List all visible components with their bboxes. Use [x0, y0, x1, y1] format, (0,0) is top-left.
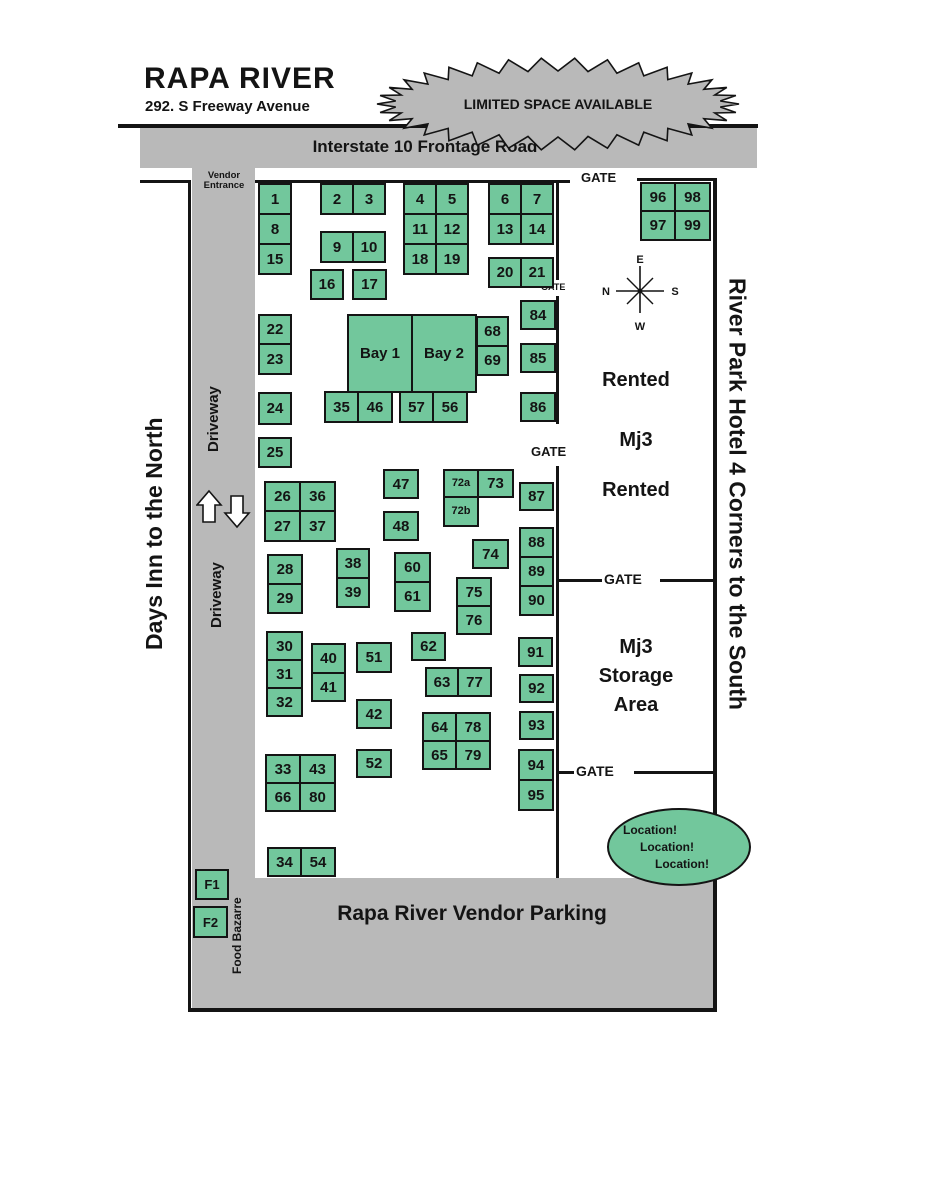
booth-37: 37: [299, 510, 336, 542]
booth-51: 51: [356, 642, 392, 673]
south-wall: [188, 1008, 717, 1012]
booth-75: 75: [456, 577, 492, 607]
booth-16: 16: [310, 269, 344, 300]
days-inn-label: Days Inn to the North: [142, 360, 167, 650]
booth-64: 64: [422, 712, 457, 742]
location-badge: Location! Location! Location!: [607, 808, 751, 886]
booth-32: 32: [266, 687, 303, 717]
south-gate-fence-left: [556, 771, 574, 774]
booth-95: 95: [518, 779, 554, 811]
booth-72a: 72a: [443, 469, 479, 498]
gate-label-storage: GATE: [604, 572, 642, 587]
booth-22: 22: [258, 314, 292, 345]
rented-top-label: Rented: [576, 369, 696, 391]
bay-bay-1: Bay 1: [347, 314, 413, 393]
booth-33: 33: [265, 754, 301, 784]
booth-80: 80: [299, 782, 336, 812]
vendor-map: RAPA RIVER 292. S Freeway Avenue Interst…: [0, 0, 927, 1200]
booth-89: 89: [519, 556, 554, 587]
booth-92: 92: [519, 674, 554, 703]
booth-31: 31: [266, 659, 303, 689]
booth-86: 86: [520, 392, 556, 422]
booth-8: 8: [258, 213, 292, 245]
booth-54: 54: [300, 847, 336, 877]
south-gate-fence-right: [634, 771, 713, 774]
north-wall-96: [637, 178, 716, 181]
booth-26: 26: [264, 481, 301, 512]
booth-28: 28: [267, 554, 303, 585]
booth-4: 4: [403, 183, 437, 215]
booth-14: 14: [520, 213, 554, 245]
booth-25: 25: [258, 437, 292, 468]
booth-f2: F2: [193, 906, 228, 938]
booth-65: 65: [422, 740, 457, 770]
limited-space-starburst: LIMITED SPACE AVAILABLE: [373, 56, 743, 154]
booth-61: 61: [394, 581, 431, 612]
booth-94: 94: [518, 749, 554, 781]
booth-73: 73: [477, 469, 514, 498]
booth-27: 27: [264, 510, 301, 542]
booth-47: 47: [383, 469, 419, 499]
booth-88: 88: [519, 527, 554, 558]
booth-1: 1: [258, 183, 292, 215]
down-arrow-icon: [225, 496, 249, 527]
booth-17: 17: [352, 269, 387, 300]
booth-60: 60: [394, 552, 431, 583]
booth-3: 3: [352, 183, 386, 215]
booth-9: 9: [320, 231, 354, 263]
compass-w: W: [635, 321, 646, 333]
booth-43: 43: [299, 754, 336, 784]
booth-91: 91: [518, 637, 553, 667]
booth-29: 29: [267, 583, 303, 614]
booth-48: 48: [383, 511, 419, 541]
storage-gate-fence-left: [556, 579, 602, 582]
food-bazarre-label: Food Bazarre: [231, 886, 244, 974]
booth-68: 68: [476, 316, 509, 347]
booth-13: 13: [488, 213, 522, 245]
booth-40: 40: [311, 643, 346, 674]
inner-wall-seg2: [556, 296, 559, 424]
booth-34: 34: [267, 847, 302, 877]
booth-f1: F1: [195, 869, 229, 900]
booth-90: 90: [519, 585, 554, 616]
booth-39: 39: [336, 577, 370, 608]
booth-79: 79: [455, 740, 491, 770]
booth-52: 52: [356, 749, 392, 778]
booth-56: 56: [432, 391, 468, 423]
compass-s: S: [671, 286, 678, 298]
booth-15: 15: [258, 243, 292, 275]
booth-38: 38: [336, 548, 370, 579]
booth-24: 24: [258, 392, 292, 425]
driveway-label-lower: Driveway: [209, 548, 226, 628]
booth-7: 7: [520, 183, 554, 215]
booth-97: 97: [640, 210, 676, 241]
booth-76: 76: [456, 605, 492, 635]
booth-23: 23: [258, 343, 292, 375]
booth-2: 2: [320, 183, 354, 215]
booth-99: 99: [674, 210, 711, 241]
site-title: RAPA RIVER: [144, 62, 336, 95]
booth-5: 5: [435, 183, 469, 215]
booth-10: 10: [352, 231, 386, 263]
booth-12: 12: [435, 213, 469, 245]
booth-62: 62: [411, 632, 446, 661]
booth-19: 19: [435, 243, 469, 275]
rented-bottom-label: Rented: [576, 479, 696, 501]
inner-wall-seg1: [556, 180, 559, 280]
vendor-entrance-label: Vendor Entrance: [197, 171, 251, 192]
inner-wall-seg3: [556, 466, 559, 878]
gate-label-south: GATE: [576, 764, 614, 779]
booth-93: 93: [519, 711, 554, 740]
booth-87: 87: [519, 482, 554, 511]
storage-gate-fence-right: [660, 579, 713, 582]
booth-20: 20: [488, 257, 522, 288]
booth-6: 6: [488, 183, 522, 215]
booth-85: 85: [520, 343, 556, 373]
booth-42: 42: [356, 699, 392, 729]
booth-35: 35: [324, 391, 359, 423]
booth-77: 77: [457, 667, 492, 697]
mj3-label: Mj3: [576, 429, 696, 451]
up-arrow-icon: [197, 491, 221, 522]
site-address: 292. S Freeway Avenue: [145, 99, 310, 116]
west-boundary-tick: [140, 180, 188, 183]
west-wall: [188, 180, 191, 1012]
limited-space-banner: LIMITED SPACE AVAILABLE: [464, 96, 652, 112]
booth-41: 41: [311, 672, 346, 702]
compass-n: N: [602, 286, 610, 298]
gate-label-top: GATE: [581, 171, 616, 185]
driveway-label-upper: Driveway: [206, 372, 223, 452]
booth-84: 84: [520, 300, 556, 330]
booth-69: 69: [476, 345, 509, 376]
booth-74: 74: [472, 539, 509, 569]
booth-30: 30: [266, 631, 303, 661]
booth-11: 11: [403, 213, 437, 245]
bay-bay-2: Bay 2: [411, 314, 477, 393]
parking-lot: [192, 878, 713, 1008]
booth-72b: 72b: [443, 496, 479, 527]
booth-21: 21: [520, 257, 554, 288]
booth-18: 18: [403, 243, 437, 275]
booth-46: 46: [357, 391, 393, 423]
booth-96: 96: [640, 182, 676, 212]
driveway-arrows-icon: [196, 488, 252, 530]
compass-icon: E N S W: [595, 252, 687, 338]
booth-66: 66: [265, 782, 301, 812]
booth-57: 57: [399, 391, 434, 423]
booth-78: 78: [455, 712, 491, 742]
river-park-hotel-label: River Park Hotel 4 Corners to the South: [724, 278, 749, 738]
storage-area-label: Mj3 Storage Area: [576, 633, 696, 720]
compass-e: E: [636, 254, 643, 266]
gate-label-mid: GATE: [531, 445, 566, 459]
booth-63: 63: [425, 667, 459, 697]
booth-98: 98: [674, 182, 711, 212]
east-wall: [713, 178, 717, 1012]
parking-label: Rapa River Vendor Parking: [262, 902, 682, 925]
booth-36: 36: [299, 481, 336, 512]
